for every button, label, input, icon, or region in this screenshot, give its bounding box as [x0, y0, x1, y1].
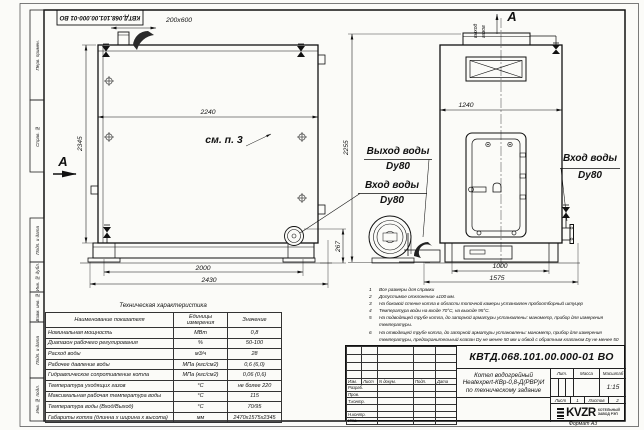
role-row: [347, 404, 457, 411]
spec-row: Диапазон рабочего регулирования%50-100: [46, 338, 282, 349]
format-note: Формат А3: [548, 421, 618, 427]
company-logo: KVZR КОТЕЛЬНЫЙ ЗАВОД РЭП: [550, 404, 626, 422]
dim-side-span: 2000: [183, 265, 223, 272]
explosion-hatch: [466, 57, 526, 81]
frame-label-perv-primen: Перв. примен.: [30, 10, 44, 100]
note-item: 1Все размеры для справки: [366, 287, 624, 294]
dim-front-height: 2255: [342, 131, 351, 165]
spec-row: Гидравлическое сопротивление котлаМПа (к…: [46, 370, 282, 381]
dim-front-span: 1000: [481, 263, 519, 270]
frame-label-inv-dubl: Инв. № дубл.: [30, 262, 44, 292]
dim-side-overall: 2430: [189, 277, 229, 284]
note-item: 2Допустимое отклонение ±100 мм.: [366, 294, 624, 301]
fan-blower: [369, 216, 440, 263]
door-lock: [493, 183, 501, 192]
dim-chimney: 200х600: [158, 17, 200, 24]
role-row: Пров.: [347, 391, 457, 398]
spec-row: Номинальная мощностьМВт0,8: [46, 328, 282, 339]
drawing-sheet: Перв. примен. Справ. № Подп. и дата Инв.…: [0, 0, 644, 430]
spec-col-value: Значение: [228, 313, 282, 328]
top-stamp-doc-number: КВТД.068.101.00.000-01 ВО: [57, 10, 143, 25]
scale-value: 1:15: [599, 379, 626, 397]
role-row: Утв.: [347, 418, 457, 425]
mass-header: Масса: [573, 369, 599, 379]
spec-row: Температура воды (Вход/Выход)°С70/95: [46, 402, 282, 413]
label-water-in-right-dn: Dу80: [556, 170, 624, 181]
boiler-front-view: [425, 18, 580, 270]
material-cell: [456, 398, 550, 422]
dim-nozzle-height: 267: [334, 229, 343, 263]
side-view-skid: [80, 243, 332, 263]
view-label-a: А: [501, 9, 523, 24]
sheets-label: Листов: [584, 397, 608, 404]
spec-col-units: Единицы измерения: [174, 313, 228, 328]
lit-sub-2: [558, 379, 565, 397]
gas-outlet-label-line2: газов: [481, 8, 487, 38]
spec-row: Расход водым3/ч28: [46, 349, 282, 360]
scale-header: Масштаб: [599, 369, 626, 379]
frame-label-inv-podl: Инв. № подл.: [30, 378, 44, 421]
frame-label-sprav-no: Справ. №: [30, 100, 44, 172]
sheets-value: 2: [608, 397, 626, 404]
label-water-out: Выход воды: [362, 146, 434, 157]
roof-valve-right: [297, 46, 305, 57]
spec-row: Температура уходящих газов°Сне более 220: [46, 380, 282, 391]
label-water-in-right: Вход воды: [556, 153, 624, 164]
mass-value: [573, 379, 599, 397]
revision-header-row: Изм.Лист N докум.Подп. Дата: [347, 378, 457, 385]
product-name: Котел водогрейный Heatexpert-КВр-0,8-Д(Р…: [456, 369, 550, 398]
note-item: 5На подводящей трубе котла, до запорной …: [366, 315, 624, 329]
front-view-base: [425, 243, 580, 263]
label-water-out-dn: Dу80: [362, 161, 434, 172]
role-row: Т.контр.: [347, 398, 457, 405]
doc-number: КВТД.068.101.00.000-01 ВО: [456, 346, 626, 369]
dim-front-width: 1240: [446, 102, 486, 109]
sheet-label: Лист: [550, 397, 570, 404]
lit-sub-3: [565, 379, 573, 397]
frame-label-vzam-inv: Взам. инв. №: [30, 292, 44, 322]
furnace-door: [466, 133, 526, 237]
note-item: 4Температура воды на входе 70°С, на выхо…: [366, 308, 624, 315]
drain-valve: [103, 227, 111, 238]
air-valve: [552, 45, 560, 54]
company-name: КОТЕЛЬНЫЙ ЗАВОД РЭП: [598, 409, 620, 417]
role-row: Н.контр.: [347, 411, 457, 418]
logo-bars-icon: [557, 408, 564, 419]
frame-label-podp-data-1: Подп. и дата: [30, 218, 44, 262]
frame-label-podp-data-2: Подп. и дата: [30, 322, 44, 378]
label-water-in: Вход воды: [356, 180, 428, 191]
sheet-value: 1: [570, 397, 584, 404]
right-inlet-nozzle: [562, 205, 574, 244]
section-label-a: А: [52, 154, 74, 169]
gas-outlet-label-line1: выход: [473, 8, 479, 38]
gas-duct-elbow: [133, 31, 154, 50]
spec-table-title: Техническая характеристика: [45, 299, 281, 312]
water-inlet-flange: [285, 227, 304, 246]
dim-front-overall: 1575: [477, 275, 517, 282]
boiler-side-view: [80, 31, 332, 263]
callout-see-item-3: см. п. 3: [198, 134, 250, 146]
revision-table: Изм.Лист N докум.Подп. Дата Разраб. Пров…: [346, 346, 457, 425]
label-water-in-dn: Dу80: [356, 195, 428, 206]
role-row: Разраб.: [347, 385, 457, 392]
dim-side-height: 2345: [76, 127, 85, 161]
note-item: 3На боковой стенке котла в области топоч…: [366, 301, 624, 308]
spec-col-name: Наименование показателя: [46, 313, 174, 328]
spec-table: Техническая характеристика Наименование …: [45, 299, 281, 423]
dim-side-width: 2240: [188, 109, 228, 116]
logo-text: KVZR: [566, 407, 596, 419]
lit-header: Лит.: [550, 369, 573, 379]
title-block: Изм.Лист N докум.Подп. Дата Разраб. Пров…: [345, 345, 625, 421]
lit-sub-1: [550, 379, 558, 397]
spec-row: Максимальная рабочая температура воды°С1…: [46, 391, 282, 402]
spec-row: Габариты котла (длинна х ширина х высота…: [46, 412, 282, 423]
spec-row: Рабочее давление водыМПа (кгс/см2)0,6 (6…: [46, 359, 282, 370]
